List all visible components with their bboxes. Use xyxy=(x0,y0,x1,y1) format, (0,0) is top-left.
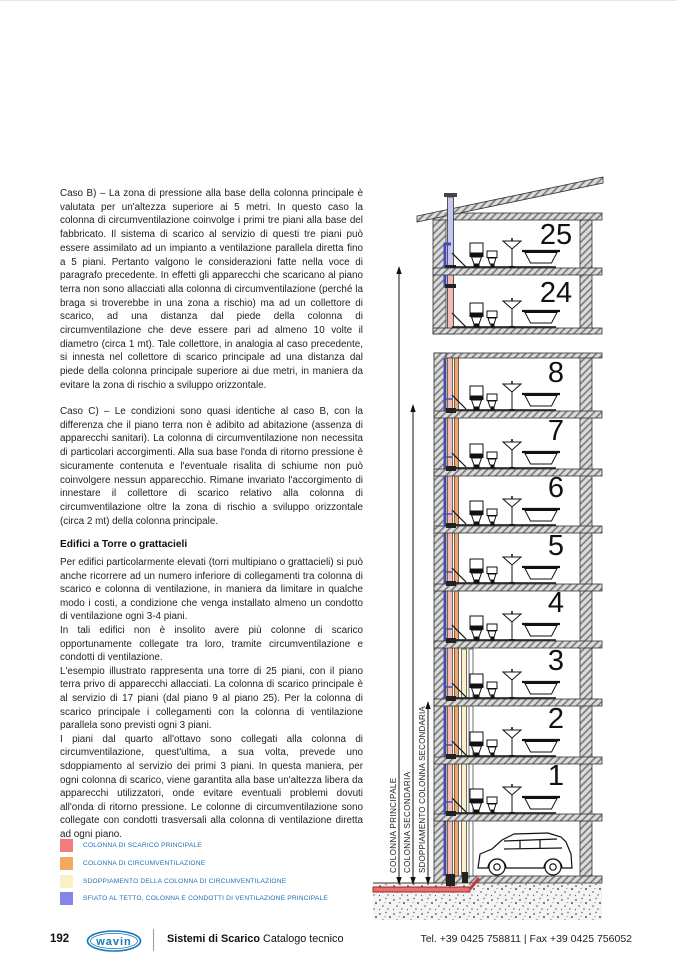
floor-6: 6 xyxy=(434,472,602,533)
floor-number-4: 4 xyxy=(548,587,564,619)
floor-3: 3 xyxy=(434,645,602,706)
wavin-logo-text: wavin xyxy=(95,936,132,948)
floor-number-5: 5 xyxy=(548,530,564,562)
floors: 8 7 6 xyxy=(434,357,602,821)
floor-number-3: 3 xyxy=(548,645,564,677)
legend-item: SFIATO AL TETTO, COLONNA E CONDOTTI DI V… xyxy=(60,890,380,908)
legend-label: COLONNA DI CIRCUMVENTILAZIONE xyxy=(83,860,205,867)
footer-title-regular: Catalogo tecnico xyxy=(260,933,343,945)
legend-label: SDOPPIAMENTO DELLA COLONNA DI CIRCUMVENT… xyxy=(83,878,286,885)
building-section-diagram: 25 24 xyxy=(370,171,677,931)
footer: 192 wavin Sistemi di Scarico Catalogo te… xyxy=(0,927,677,959)
section-heading: Edifici a Torre o grattacieli xyxy=(60,539,363,550)
paragraph-tower-1: Per edifici particolarmente elevati (tor… xyxy=(60,556,363,624)
vent-cap xyxy=(444,193,457,197)
floor-2: 2 xyxy=(434,703,602,764)
floor-4: 4 xyxy=(434,587,602,648)
floor-number-2: 2 xyxy=(548,703,564,735)
paragraph-caso-c: Caso C) – Le condizioni sono quasi ident… xyxy=(60,405,363,528)
legend-label: SFIATO AL TETTO, COLONNA E CONDOTTI DI V… xyxy=(83,895,328,902)
legend-label: COLONNA DI SCARICO PRINCIPALE xyxy=(83,842,202,849)
legend-item: COLONNA DI CIRCUMVENTILAZIONE xyxy=(60,855,380,873)
floor-1: 1 xyxy=(434,760,602,821)
footer-title-bold: Sistemi di Scarico xyxy=(167,933,260,945)
floor-number-7: 7 xyxy=(548,415,564,447)
floor-8: 8 xyxy=(434,357,602,418)
wavin-logo: wavin xyxy=(86,929,142,958)
label-colonna-principale: COLONNA PRINCIPALE xyxy=(389,777,398,873)
legend-item: COLONNA DI SCARICO PRINCIPALE xyxy=(60,837,380,855)
car xyxy=(478,833,572,875)
circumventilazione-column xyxy=(455,358,459,876)
floor-number-6: 6 xyxy=(548,472,564,504)
label-sdoppiamento-colonna-secondaria: SDOPPIAMENTO COLONNA SECONDARIA xyxy=(418,706,427,873)
legend: COLONNA DI SCARICO PRINCIPALE COLONNA DI… xyxy=(60,837,380,908)
lower-section xyxy=(434,353,602,886)
upper-section: 25 24 xyxy=(417,177,603,334)
legend-swatch-sdoppiamento xyxy=(60,875,73,888)
tower-paragraphs: Per edifici particolarmente elevati (tor… xyxy=(60,556,363,841)
page-number: 192 xyxy=(50,933,69,945)
legend-item: SDOPPIAMENTO DELLA COLONNA DI CIRCUMVENT… xyxy=(60,872,380,890)
colonna-labels: COLONNA PRINCIPALE COLONNA SECONDARIA SD… xyxy=(389,706,427,873)
legend-swatch-circumventilazione xyxy=(60,857,73,870)
footer-title: Sistemi di Scarico Catalogo tecnico xyxy=(167,933,343,945)
floor-5: 5 xyxy=(434,530,602,591)
legend-swatch-scarico xyxy=(60,839,73,852)
legend-swatch-sfiato xyxy=(60,892,73,905)
floor-number-25: 25 xyxy=(540,219,572,251)
vent-pipe-roof xyxy=(448,197,454,268)
floor-7: 7 xyxy=(434,415,602,476)
ground xyxy=(373,876,602,920)
floor-number-24: 24 xyxy=(540,277,572,309)
paragraph-tower-2: In tali edifici non è insolito avere più… xyxy=(60,624,363,665)
label-colonna-secondaria: COLONNA SECONDARIA xyxy=(403,771,412,873)
paragraph-caso-b: Caso B) – La zona di pressione alla base… xyxy=(60,187,363,393)
floor-number-1: 1 xyxy=(548,760,564,792)
footer-contact: Tel. +39 0425 758811 | Fax +39 0425 7560… xyxy=(420,933,632,945)
footer-divider xyxy=(153,929,154,951)
paragraph-tower-4: I piani dal quarto all'ottavo sono colle… xyxy=(60,733,363,842)
paragraph-tower-3: L'esempio illustrato rappresenta una tor… xyxy=(60,665,363,733)
catalog-page: Caso B) – La zona di pressione alla base… xyxy=(0,0,677,959)
floor-number-8: 8 xyxy=(548,357,564,389)
